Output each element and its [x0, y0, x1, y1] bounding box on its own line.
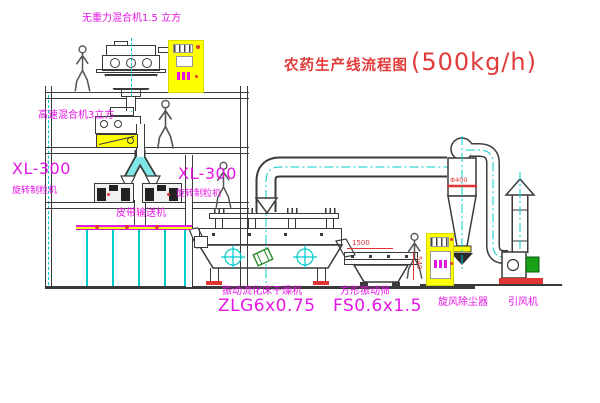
fan-motor: [526, 257, 539, 272]
stack-rain-cap: [506, 179, 534, 195]
belt-conveyor-belt: [76, 225, 192, 230]
cyclone-outlet-circle: [451, 138, 473, 160]
sample-barrel: [253, 248, 273, 266]
cabinet-display: [444, 260, 447, 268]
cabinet-display: [439, 260, 442, 268]
cabinet-meter-panel: [430, 237, 449, 247]
worker-top-floor: [75, 46, 89, 91]
label-cyclone: 旋风除尘器: [438, 298, 488, 309]
diagram-title: 农药生产线流程图 (500kg/h): [284, 48, 537, 76]
deck-bolt: [320, 233, 323, 236]
conveyor-roller: [125, 225, 129, 229]
deck-divider: [345, 259, 417, 260]
dryer-feed-box: [194, 236, 208, 248]
indicator-dot: [450, 262, 453, 265]
induced-draft-fan-shape: [499, 252, 543, 284]
mixer-nozzle: [142, 58, 152, 68]
indicator-dot: [167, 193, 170, 196]
deck-bolt: [405, 255, 408, 258]
conveyor-leg: [86, 230, 88, 286]
conveyor-leg: [164, 230, 166, 286]
deck-bolt: [248, 233, 251, 236]
dryer-hopper: [199, 245, 342, 268]
granulator-block: [97, 188, 106, 201]
control-cabinet-ground: [426, 233, 454, 286]
label-high-speed-mixer: 高速混合机3立方: [38, 111, 114, 122]
indicator-dot: [450, 238, 453, 241]
exhaust-hood-funnel: [256, 198, 277, 213]
label-granulator-left-name: 旋转制粒机: [12, 187, 57, 196]
screen-vdim-line: [413, 252, 414, 280]
label-fan: 引风机: [508, 298, 538, 309]
deck-bolt: [212, 233, 215, 236]
control-cabinet-top: [168, 40, 204, 93]
hs-mixer-drive-box: [96, 134, 138, 148]
floor-slab-middle: [45, 147, 249, 154]
title-capacity: (500kg/h): [411, 48, 537, 76]
granulator-head: [109, 185, 118, 191]
dryer-top-beam: [209, 213, 339, 219]
dryer-leg-pad: [313, 281, 329, 285]
screen-length-dim: 1500: [352, 240, 370, 247]
worker-middle-floor: [158, 100, 173, 147]
dryer-leg: [317, 268, 326, 281]
mixer-nozzle: [110, 58, 120, 68]
granulator-left-machine: [94, 183, 134, 203]
granulator-block: [121, 188, 130, 201]
dryer-leg: [210, 268, 219, 281]
dryer-flange-symbol: [221, 246, 317, 268]
label-dryer-model: ZLG6x0.75: [218, 298, 316, 315]
cyclone-dia-dim: Φ400: [450, 177, 468, 184]
screen-dim-line: [347, 248, 393, 249]
cabinet-display: [434, 260, 437, 268]
diagram-canvas: 1500 540 Φ400 农药生产线流程图 (500kg/h) 无重力混合机1…: [0, 0, 600, 403]
indicator-dot: [195, 75, 198, 78]
label-screen-model: FS0.6x1.5: [333, 298, 422, 315]
indicator-dot: [107, 193, 110, 196]
cyclone-flap: [451, 253, 473, 265]
granulator-block: [145, 188, 154, 201]
conveyor-roller: [95, 225, 99, 229]
drive-pulley: [127, 137, 134, 144]
indicator-dot: [196, 45, 200, 49]
deck-bolt: [369, 255, 372, 258]
screen-height-dim: 540: [415, 256, 422, 269]
deck-bolt: [387, 255, 390, 258]
fan-inlet-duct: [466, 150, 510, 257]
conveyor-roller: [155, 225, 159, 229]
deck-bolt: [284, 233, 287, 236]
exhaust-stack: [506, 172, 534, 262]
conveyor-leg: [138, 230, 140, 286]
dryer-leg-pad: [206, 281, 222, 285]
floor-slab-top: [45, 92, 249, 99]
dryer-deck: [199, 228, 342, 245]
conveyor-leg: [112, 230, 114, 286]
granulator-head: [157, 185, 166, 191]
cabinet-meter-panel: [173, 44, 193, 53]
label-granulator-right-name: 旋转制粒机: [176, 190, 221, 199]
label-belt-conveyor: 皮带输送机: [116, 209, 166, 220]
label-gravity-free-mixer: 无重力混合机1.5 立方: [82, 14, 181, 25]
title-text: 农药生产线流程图: [284, 54, 408, 75]
screen-base: [354, 265, 408, 282]
cabinet-window: [176, 56, 193, 67]
cabinet-display: [187, 72, 190, 80]
label-granulator-right-model: XL-300: [178, 166, 237, 182]
cabinet-display: [177, 72, 180, 80]
building-column-right: [240, 86, 248, 288]
cabinet-display: [182, 72, 185, 80]
conveyor-leg: [184, 230, 186, 286]
hs-mixer-port: [114, 120, 122, 128]
label-granulator-left-model: XL-300: [12, 161, 71, 177]
vibrating-screen-deck: [344, 252, 418, 265]
deck-bolt: [351, 255, 354, 258]
